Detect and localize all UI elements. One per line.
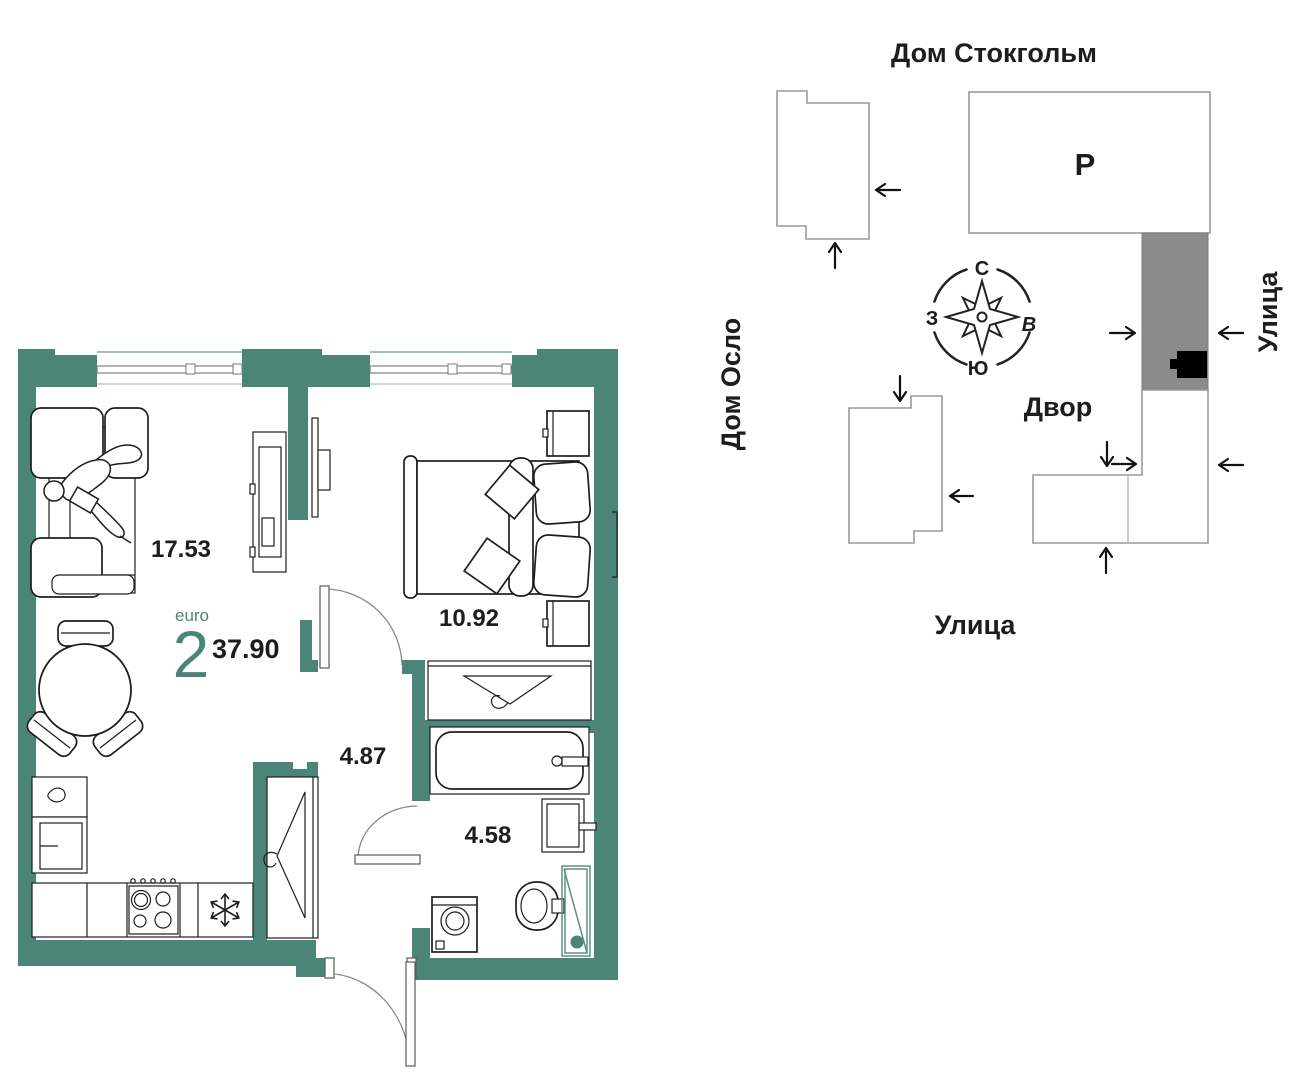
- hallway-area-label: 4.87: [340, 743, 387, 770]
- bedroom-area-label: 10.92: [439, 605, 499, 632]
- building-oslo-label: Дом Осло: [716, 318, 746, 450]
- bathroom-area-label: 4.58: [465, 822, 512, 849]
- living-area-label: 17.53: [151, 536, 211, 563]
- tv-unit-living: [250, 432, 286, 572]
- dining-table: [39, 644, 131, 736]
- floorplan-page: 17.53 10.92 4.87 4.58 euro 2 37.90: [0, 0, 1316, 1080]
- door-entry: [325, 958, 416, 1066]
- washing-machine: [432, 897, 477, 952]
- plan-canvas: 17.53 10.92 4.87 4.58 euro 2 37.90: [0, 0, 1316, 1080]
- bedroom-closet: [428, 661, 591, 720]
- parking-label: Р: [1075, 147, 1096, 182]
- floor-plan: 17.53 10.92 4.87 4.58 euro 2 37.90: [18, 349, 618, 1066]
- nightstand-top: [543, 411, 589, 456]
- kitchen: [32, 777, 253, 937]
- bath-sink: [542, 799, 596, 852]
- tv-bedroom: [312, 418, 330, 517]
- unit-total-area: 37.90: [212, 634, 280, 664]
- building-oslo: [849, 396, 942, 543]
- unit-summary: euro 2 37.90: [173, 606, 280, 691]
- bathtub: [430, 727, 589, 794]
- stove-icon: [129, 879, 178, 934]
- site-title: Дом Стокгольм: [891, 38, 1097, 68]
- compass-south: Ю: [968, 358, 989, 380]
- building-stockholm-north: [777, 91, 869, 239]
- dining-set: [24, 621, 146, 759]
- compass-north: С: [975, 258, 989, 280]
- shower-drain-tray: [562, 866, 590, 956]
- site-plan: С Ю З В Дом Стокгольм Дом Осло Улица Ули…: [716, 38, 1283, 640]
- nightstand-bottom: [543, 601, 589, 646]
- hall-wardrobe: [264, 777, 318, 938]
- toilet: [516, 882, 564, 930]
- street-right-label: Улица: [1253, 271, 1283, 353]
- unit-rooms-number: 2: [173, 617, 210, 691]
- compass-rose-icon: С Ю З В: [926, 258, 1036, 380]
- door-bedroom: [320, 586, 402, 668]
- street-bottom-label: Улица: [935, 610, 1017, 640]
- window-bedroom: [370, 352, 512, 384]
- compass-east: В: [1022, 314, 1036, 336]
- window-living: [97, 352, 242, 384]
- bed: [404, 456, 591, 598]
- compass-west: З: [926, 308, 939, 330]
- courtyard-label: Двор: [1024, 392, 1092, 422]
- door-bathroom: [355, 806, 420, 864]
